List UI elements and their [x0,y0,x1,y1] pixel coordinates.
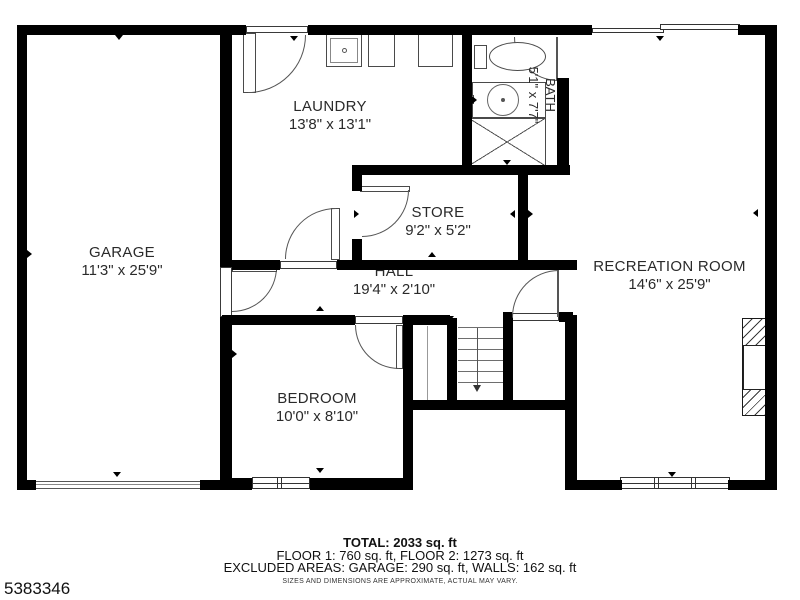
dimension-tick [446,316,454,321]
window-mid-line [621,483,729,484]
room-name: RECREATION ROOM [587,258,752,276]
wall-segment [352,165,570,175]
floor-plan: GARAGE 11'3" x 25'9" LAUNDRY 13'8" x 13'… [0,0,800,600]
dimension-tick [430,167,438,172]
washer [368,34,395,67]
wall-segment [503,318,513,406]
wall-segment [765,25,777,490]
wall-segment [352,165,362,191]
room-label-store: STORE 9'2" x 5'2" [378,204,498,240]
room-label-recreation: RECREATION ROOM 14'6" x 25'9" [587,258,752,294]
wall-segment [565,315,577,480]
room-label-bath: BATH 5'1" x 7'7" [523,50,559,140]
recreation-top-window-left-pane [592,28,664,33]
fireplace-firebox [743,345,767,390]
garage-door-line [36,484,200,485]
dimension-tick [528,210,533,218]
dimension-tick [115,35,123,40]
dimension-tick [656,36,664,41]
disclaimer-text: SIZES AND DIMENSIONS ARE APPROXIMATE, AC… [0,578,800,585]
wall-segment [220,317,232,490]
room-dims: 11'3" x 25'9" [42,262,202,280]
wall-segment [462,35,472,165]
garage-hall-door-threshold [220,267,232,317]
window-mullion [277,478,278,488]
bath-sink-drain [501,98,505,102]
wall-segment [565,480,622,490]
room-dims: 10'0" x 8'10" [237,408,397,426]
room-label-laundry: LAUNDRY 13'8" x 13'1" [250,98,410,134]
closet-door-swing-arc [512,270,559,317]
room-dims: 14'6" x 25'9" [587,276,752,294]
stairs-direction-line [477,328,478,386]
window-mullion [658,478,659,488]
room-dims: 13'8" x 13'1" [250,116,410,134]
dimension-tick [354,210,359,218]
wall-segment [310,478,413,490]
wall-segment [17,25,246,35]
toilet-tank [474,45,487,69]
window-mullion [691,478,692,488]
room-name: BEDROOM [237,390,397,408]
garage-hall-door-swing-arc [232,267,277,312]
dimension-tick [510,210,515,218]
room-label-bedroom: BEDROOM 10'0" x 8'10" [237,390,397,426]
dimension-tick [753,209,758,217]
room-label-garage: GARAGE 11'3" x 25'9" [42,244,202,280]
wall-segment [518,175,528,260]
room-dims: 19'4" x 2'10" [314,281,474,299]
wall-segment [352,239,362,270]
wall-segment [222,315,355,325]
dimension-tick [232,350,237,358]
dimension-tick [27,250,32,258]
dimension-tick [503,160,511,165]
wall-segment [220,25,232,267]
wall-segment [232,260,280,270]
bedroom-window [252,477,310,489]
dryer [418,34,453,67]
dimension-tick [668,472,676,477]
dimension-tick [472,96,477,104]
room-name: LAUNDRY [250,98,410,116]
laundry-hall-door-swing-arc [285,208,336,259]
wall-segment [403,400,577,410]
room-dims: 9'2" x 5'2" [378,222,498,240]
wall-segment [232,478,252,490]
wall-segment [308,25,592,35]
window-mullion [281,478,282,488]
dimension-tick [113,472,121,477]
dimension-tick [316,468,324,473]
laundry-sink-drain [342,48,347,53]
dimension-tick [428,252,436,257]
window-mullion [695,478,696,488]
stairs-down-arrow [473,385,481,392]
stairs-treads [458,327,503,391]
wall-segment [17,25,27,490]
floor-plan-drawing: GARAGE 11'3" x 25'9" LAUNDRY 13'8" x 13'… [0,0,800,520]
dimension-tick [290,36,298,41]
entry-door-swing-arc [248,35,306,93]
wall-segment [17,480,36,490]
excluded-areas-text: EXCLUDED AREAS: GARAGE: 290 sq. ft, WALL… [0,560,800,575]
room-name: GARAGE [42,244,202,262]
laundry-sink [326,34,362,67]
entry-door-threshold [246,26,308,33]
dimension-tick [316,306,324,311]
window-mullion [654,478,655,488]
wall-segment [337,260,577,270]
closet-divider-line [427,326,428,400]
wall-segment [728,480,777,490]
bedroom-door-swing-arc [355,325,399,369]
room-name: STORE [378,204,498,222]
wall-segment [447,318,457,406]
room-dims: 5'1" x 7'7" [525,50,542,140]
wall-segment [557,78,569,175]
recreation-bottom-window [620,477,730,489]
recreation-top-window-right-pane [660,24,740,30]
listing-id: 5383346 [4,579,70,599]
garage-door [36,481,200,489]
bedroom-door-threshold [355,316,403,324]
